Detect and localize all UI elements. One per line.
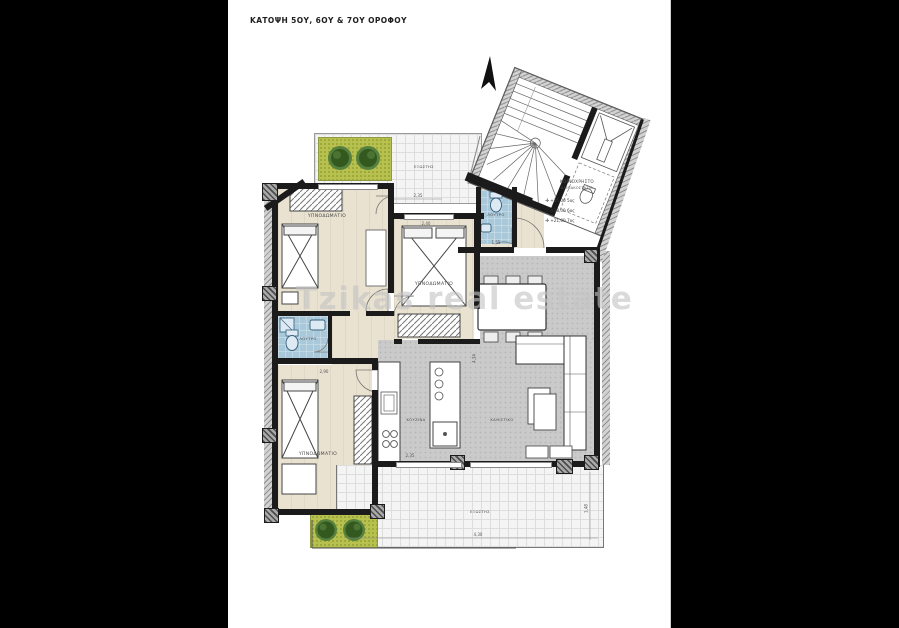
dim-kitchen: 2,35 xyxy=(406,453,415,458)
dresser-top-left xyxy=(366,230,386,286)
level-mark-7th: ✛+21,00 7ος xyxy=(545,218,575,224)
wardrobe-center xyxy=(398,314,460,337)
dim-terrace-height: 1,48 xyxy=(584,504,589,513)
exterior-insulation-left xyxy=(264,183,272,515)
room-label-bathroom: ΛΟΥΤΡΟ xyxy=(299,336,316,341)
level-mark-6th: ✛+18,00 6ος xyxy=(545,208,575,214)
north-arrow-icon xyxy=(481,56,496,91)
column xyxy=(262,286,277,301)
level-cross-icon: ✛ xyxy=(545,208,549,214)
dim-terrace-width: 4,30 xyxy=(474,532,483,537)
screenshot-canvas: ΚΑΤΟΨΗ 5ΟΥ, 6ΟΥ & 7ΟΥ ΟΡΟΦΟΥ xyxy=(0,0,899,628)
entry-door xyxy=(514,218,544,248)
watermark: Tzikas real estate xyxy=(296,281,633,317)
toilet-icon xyxy=(286,336,298,351)
room-label-kitchen: ΚΟΥΖΙΝΑ xyxy=(406,417,425,422)
dim-living-height: 4,34 xyxy=(472,354,477,363)
wall-bedroom3-right xyxy=(372,390,378,515)
wardrobe-top-left xyxy=(290,188,342,211)
dim-bedroom2-top: 2,40 xyxy=(422,221,431,226)
dim-wc: 1,55 xyxy=(492,240,501,245)
wardrobe-bottom-left xyxy=(354,396,372,464)
level-cross-icon: ✛ xyxy=(545,218,549,224)
wall-dining-top-a xyxy=(458,247,514,253)
room-label-common-sub: ΚΛΙΜΑΚΟΣΤΑΣΙΟ xyxy=(561,186,593,190)
bed-bottom-left xyxy=(282,380,318,494)
drawing-title: ΚΑΤΟΨΗ 5ΟΥ, 6ΟΥ & 7ΟΥ ΟΡΟΦΟΥ xyxy=(250,16,407,25)
level-cross-icon: ✛ xyxy=(545,198,549,204)
wall-bedroom2-south-b xyxy=(418,339,480,344)
window-bedroom2 xyxy=(404,214,454,220)
room-label-common-area: ΚΟΙΝΟΧΡΗΣΤΟ xyxy=(560,179,594,184)
tree-icons-top xyxy=(328,146,380,170)
coffee-table xyxy=(528,388,556,430)
sofa-set xyxy=(516,336,586,458)
tree-icons-bottom xyxy=(315,519,365,541)
washbasin-icon xyxy=(481,224,491,232)
wall-bath-south xyxy=(272,358,378,364)
room-label-bedroom-top-left: ΥΠΝΟΔΩΜΑΤΙΟ xyxy=(308,214,346,219)
wall-south-bedroom3 xyxy=(272,509,378,515)
dim-balcony-top: 2,35 xyxy=(414,193,423,198)
washbasin-icon xyxy=(310,320,325,330)
bathroom-fixtures xyxy=(280,318,325,351)
window-balcony-top xyxy=(318,184,378,190)
wall-bedroom2-south-a xyxy=(394,339,402,344)
wall-bath-right xyxy=(328,316,332,360)
kitchen-island xyxy=(430,362,460,448)
sliding-door-terrace-a xyxy=(396,462,462,468)
column xyxy=(262,428,277,443)
room-label-terrace: ΕΞΩΣΤΗΣ xyxy=(470,509,490,514)
column xyxy=(370,504,385,519)
room-label-balcony-top: ΕΞΩΣΤΗΣ xyxy=(414,164,434,169)
toilet-icon xyxy=(491,198,502,212)
column xyxy=(264,508,279,523)
tv-bench xyxy=(526,446,548,458)
level-mark-5th: ✛+15,00 5ος xyxy=(545,198,575,204)
dim-bedroom3-top: 2,90 xyxy=(320,369,329,374)
room-label-bedroom-bottom-left: ΥΠΝΟΔΩΜΑΤΙΟ xyxy=(299,452,337,457)
column xyxy=(556,459,573,474)
bedroom3-door xyxy=(356,370,378,392)
column xyxy=(584,455,599,470)
column xyxy=(262,183,278,201)
column xyxy=(584,249,598,263)
room-label-wc: ΛΟΥΤΡΟ xyxy=(487,212,504,217)
kitchen-counter xyxy=(378,362,400,462)
drawing-sheet: ΚΑΤΟΨΗ 5ΟΥ, 6ΟΥ & 7ΟΥ ΟΡΟΦΟΥ xyxy=(228,0,671,628)
room-label-living: ΚΑΘΙΣΤΙΚΟ xyxy=(490,417,513,422)
sliding-door-terrace-b xyxy=(470,462,552,468)
wall-left xyxy=(272,183,278,515)
